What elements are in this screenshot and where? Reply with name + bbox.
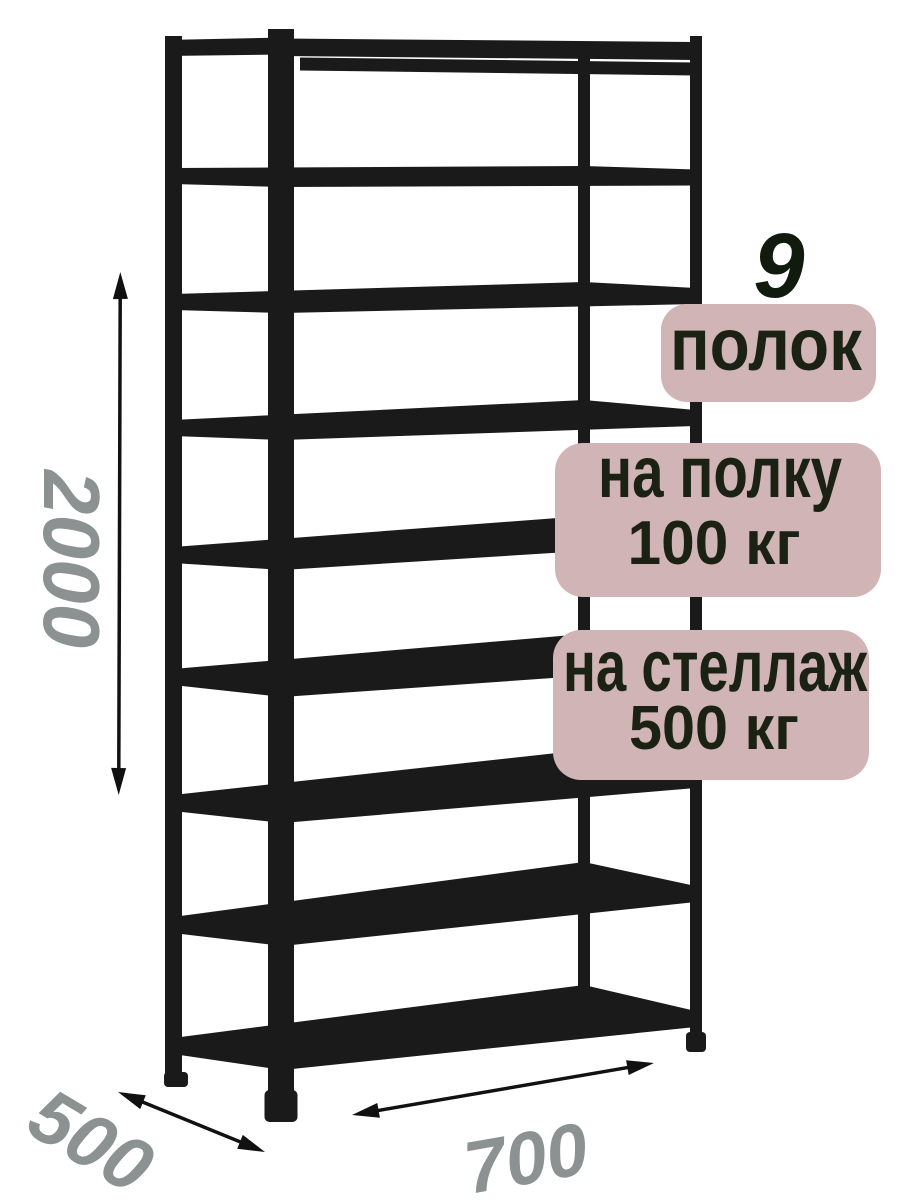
svg-text:полок: полок (670, 303, 863, 386)
svg-text:на полку: на полку (598, 433, 842, 513)
svg-text:2000: 2000 (27, 468, 116, 648)
svg-text:500 кг: 500 кг (629, 694, 799, 763)
svg-text:9: 9 (753, 215, 804, 317)
svg-text:100 кг: 100 кг (628, 509, 801, 578)
